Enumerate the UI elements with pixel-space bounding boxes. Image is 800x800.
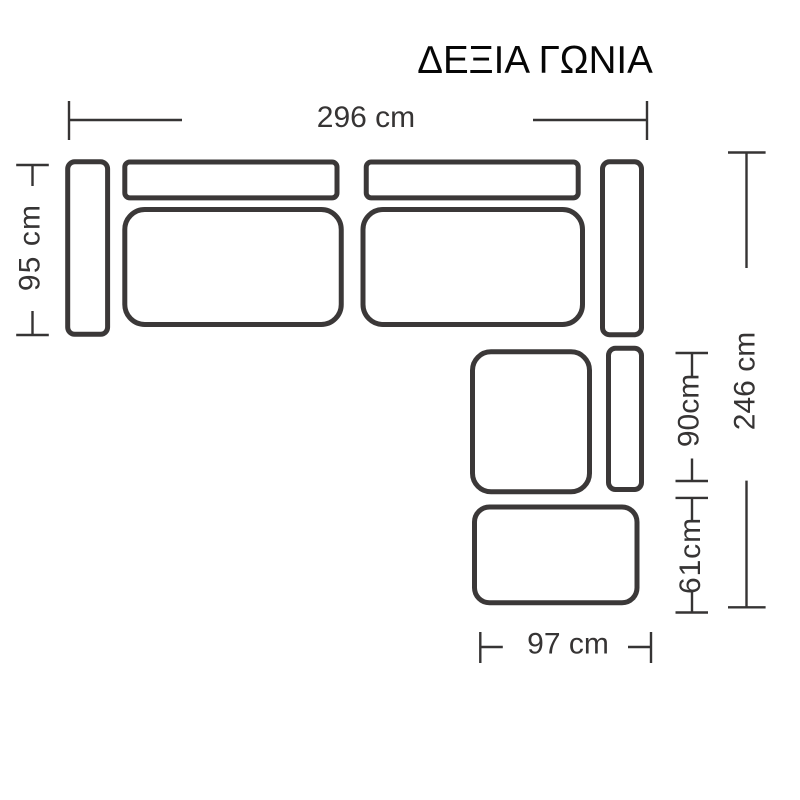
svg-text:296 cm: 296 cm bbox=[317, 101, 415, 134]
svg-text:90cm: 90cm bbox=[673, 374, 706, 447]
svg-text:61cm: 61cm bbox=[674, 517, 707, 594]
svg-text:97 cm: 97 cm bbox=[527, 628, 609, 661]
svg-text:95 cm: 95 cm bbox=[14, 204, 47, 291]
svg-text:246 cm: 246 cm bbox=[729, 332, 762, 430]
svg-text:ΔΕΞΙΑ ΓΩΝΙΑ: ΔΕΞΙΑ ΓΩΝΙΑ bbox=[417, 39, 653, 82]
